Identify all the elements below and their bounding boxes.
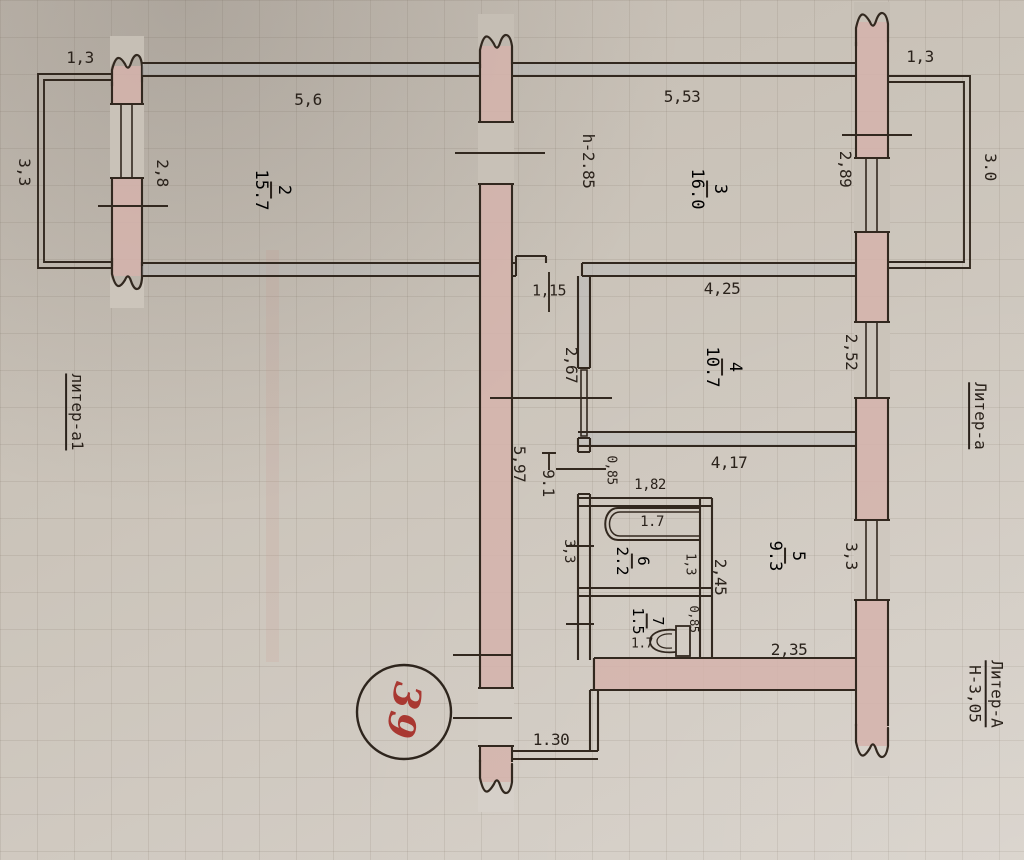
room-label-5: 5 9.3 — [765, 541, 807, 572]
annotation-left-wing: литер-а1 — [65, 373, 87, 450]
balcony-left — [38, 74, 112, 268]
room7-area: 1.5 — [629, 607, 647, 634]
room-label-2: 2 15.7 — [251, 170, 293, 211]
door-entrance-opening — [478, 688, 514, 746]
room4-area: 10.7 — [703, 347, 723, 388]
dim-corridor-length: 5,97 — [511, 446, 527, 483]
dim-room2-window: 2,8 — [154, 159, 170, 186]
break-left-top-mask — [110, 36, 144, 70]
dim-corridor-side: 3,3 — [562, 539, 576, 563]
dim-toilet-side: 0,85 — [688, 606, 700, 633]
dim-balcony-left-depth: 3,3 — [16, 158, 32, 185]
dim-balcony-right-width: 1,3 — [906, 49, 933, 65]
dim-room5-depth-left: 2,45 — [712, 559, 728, 596]
room-label-7: 7 1.5 — [628, 607, 666, 634]
window-room2-opening — [110, 104, 144, 178]
dim-balcony-right-depth: 3.0 — [982, 153, 998, 180]
floor-plan-scan: 1,3 3,3 2,8 5,6 2 15.7 5,53 h-2.85 3 16.… — [0, 0, 1024, 860]
wall-top-left-fill — [142, 64, 480, 76]
room-label-4: 4 10.7 — [702, 347, 744, 388]
break-central-top-mask — [478, 14, 514, 50]
room5-area: 9.3 — [766, 541, 786, 572]
room6-number: 6 — [631, 553, 652, 569]
balcony-right — [888, 76, 970, 268]
dim-room5-window: 3,3 — [843, 542, 859, 569]
wall-room4-bottom-fill — [578, 433, 856, 445]
break-right-bottom-mask — [854, 742, 890, 776]
room-label-6: 6 2.2 — [612, 547, 652, 576]
wall-bath-wc-divider — [578, 588, 712, 596]
dim-room4-depth-left: 2,67 — [563, 347, 579, 384]
dim-toilet-length: 1.7 — [631, 638, 653, 651]
dim-room4-window: 2,52 — [843, 334, 859, 371]
break-central-bottom-mask — [478, 778, 514, 812]
room2-number: 2 — [271, 182, 294, 198]
tick-corridor-area — [542, 453, 556, 470]
annotation-building-liter: Литер-А — [985, 660, 1007, 727]
room-label-3: 3 16.0 — [687, 169, 729, 210]
wall-room2-bottom-fill — [142, 264, 480, 276]
room3-area: 16.0 — [688, 169, 708, 210]
dim-bathtub-length: 1.7 — [640, 515, 664, 529]
wall-bath-top — [578, 498, 712, 506]
room7-number: 7 — [646, 613, 666, 628]
door-room4-leaf — [581, 370, 587, 436]
annotation-left-wing-text: литер-а1 — [65, 373, 87, 450]
paper-crease — [266, 250, 279, 662]
annotation-building-height: Н-3,05 — [966, 665, 985, 723]
wall-top-right-fill — [512, 64, 856, 76]
dim-bathroom-inner: 1,3 — [684, 553, 697, 575]
wall-room3-bottom-fill — [584, 264, 856, 276]
dim-entrance-width: 1.30 — [533, 732, 570, 748]
room4-number: 4 — [722, 359, 745, 375]
room3-number: 3 — [707, 181, 730, 197]
annotation-right-wing: Литер-а — [968, 382, 990, 449]
room2-area: 15.7 — [252, 170, 272, 211]
toilet-bowl-inner — [657, 634, 672, 648]
annotation-building: Литер-А Н-3,05 — [965, 660, 1006, 727]
dim-balcony-left-width: 1,3 — [66, 50, 93, 66]
floor-plan-drawing — [0, 0, 1024, 860]
dim-room5-bottom: 2,35 — [771, 642, 808, 658]
dim-room3-width: 5,53 — [664, 89, 701, 105]
room5-number: 5 — [785, 548, 808, 564]
dim-room2-width: 5,6 — [294, 92, 321, 108]
break-left-bottom-mask — [110, 274, 144, 308]
annotation-right-wing-text: Литер-а — [968, 382, 990, 449]
dim-entry-nook-depth: 0,85 — [605, 455, 618, 484]
dim-room4-width: 4,25 — [704, 281, 741, 297]
dim-room5-width: 4,17 — [711, 455, 748, 471]
window-room3-opening — [854, 158, 890, 232]
corridor-area: 9.1 — [540, 469, 556, 496]
dim-corridor-width-top: 1,15 — [532, 284, 566, 299]
ceiling-height-note: h-2.85 — [580, 134, 596, 189]
wall-bottom — [594, 658, 856, 690]
dim-room3-window: 2,89 — [837, 151, 853, 188]
dim-bathroom-width: 1,82 — [634, 478, 666, 492]
room6-area: 2.2 — [613, 547, 632, 576]
